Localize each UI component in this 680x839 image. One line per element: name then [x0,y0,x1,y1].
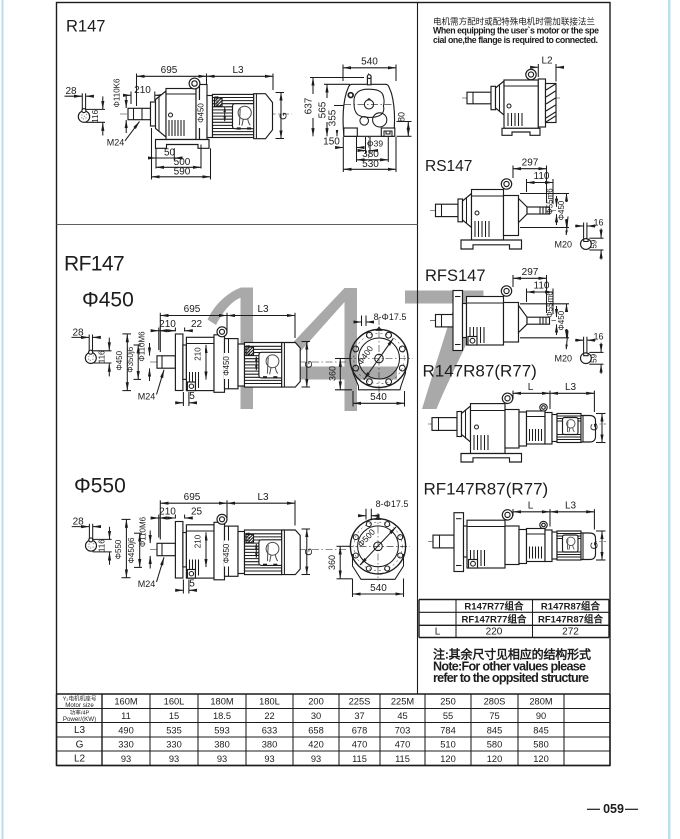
svg-text:Φ450: Φ450 [222,356,231,376]
svg-text:280S: 280S [484,697,506,707]
svg-text:G: G [279,112,290,120]
svg-text:59: 59 [590,239,599,248]
svg-text:220: 220 [486,627,503,638]
svg-text:16: 16 [593,332,603,342]
svg-text:R147R87组合: R147R87组合 [541,601,601,613]
svg-text:Φ450: Φ450 [557,200,566,220]
svg-text:8-Φ17.5: 8-Φ17.5 [374,312,407,322]
svg-text:15: 15 [169,711,179,721]
svg-text:059: 059 [603,802,624,816]
svg-text:Φ39: Φ39 [367,139,384,149]
svg-text:RFS147: RFS147 [425,267,486,285]
svg-text:703: 703 [395,725,411,735]
svg-text:Φ110M6: Φ110M6 [138,331,147,362]
svg-text:Φ110K6: Φ110K6 [112,78,121,107]
svg-text:8-Φ17.5: 8-Φ17.5 [376,499,409,509]
svg-text:L3: L3 [74,725,86,736]
svg-text:cial one,the flange is require: cial one,the flange is required to conne… [433,35,598,45]
svg-text:93: 93 [311,754,321,764]
svg-text:M24: M24 [138,391,156,401]
svg-text:Φ450: Φ450 [197,103,206,123]
svg-text:G: G [76,740,84,751]
svg-text:L2: L2 [74,754,86,765]
svg-text:535: 535 [166,725,182,735]
svg-text:200: 200 [308,697,324,707]
svg-text:510: 510 [440,740,456,750]
svg-text:30: 30 [311,711,321,721]
svg-text:678: 678 [352,725,368,735]
svg-text:L2: L2 [541,56,553,67]
svg-text:Φ350j6: Φ350j6 [126,346,135,373]
svg-text:33.4: 33.4 [246,345,252,356]
svg-text:L3: L3 [257,492,269,503]
svg-text:695: 695 [184,492,201,503]
svg-text:RF147R77组合: RF147R77组合 [462,613,527,625]
svg-text:110: 110 [534,281,550,292]
svg-text:297: 297 [522,267,539,278]
svg-text:L3: L3 [257,304,269,315]
svg-text:R147: R147 [66,18,105,36]
svg-text:250: 250 [440,697,456,707]
svg-text:5: 5 [189,578,195,589]
svg-text:Motor size: Motor size [65,702,94,709]
svg-text:490: 490 [118,725,134,735]
svg-text:695: 695 [161,65,178,76]
svg-text:Φ450: Φ450 [557,310,566,330]
svg-text:G: G [304,360,315,368]
svg-text:633: 633 [262,725,278,735]
svg-text:210: 210 [134,85,151,96]
svg-text:225M: 225M [391,697,414,707]
svg-text:Φ450: Φ450 [115,350,124,370]
svg-text:Φ55m6: Φ55m6 [545,188,554,215]
svg-text:RS147: RS147 [425,158,472,175]
svg-text:RF147R87(R77): RF147R87(R77) [424,479,549,498]
svg-text:28: 28 [73,517,85,528]
svg-text:210: 210 [159,507,176,518]
svg-text:580: 580 [487,740,503,750]
svg-text:180L: 180L [259,697,280,707]
svg-text:L: L [528,501,534,512]
svg-text:540: 540 [370,392,387,403]
svg-text:330: 330 [118,740,134,750]
svg-text:784: 784 [440,725,456,735]
svg-text:22: 22 [264,711,274,721]
svg-text:M20: M20 [555,240,573,250]
svg-text:L3: L3 [565,382,577,393]
svg-text:845: 845 [487,725,503,735]
svg-text:420: 420 [308,740,324,750]
svg-text:355: 355 [328,109,339,126]
svg-text:210: 210 [194,534,203,548]
svg-text:225S: 225S [349,697,371,707]
svg-text:G: G [304,548,315,556]
svg-text:150: 150 [323,136,340,147]
svg-text:Φ110M6: Φ110M6 [138,516,147,547]
svg-text:R147R87(R77): R147R87(R77) [423,361,537,380]
svg-text:Φ450: Φ450 [82,289,134,312]
svg-text:116: 116 [97,539,106,552]
svg-text:115: 115 [352,754,367,764]
svg-text:Φ550: Φ550 [74,475,126,498]
svg-text:540: 540 [370,583,387,594]
svg-text:Φ550: Φ550 [114,539,123,559]
svg-text:RF147R87组合: RF147R87组合 [538,613,603,625]
svg-text:11: 11 [121,711,131,721]
svg-text:360: 360 [327,555,337,570]
svg-text:93: 93 [217,754,227,764]
svg-text:L3: L3 [232,65,244,76]
svg-text:M20: M20 [555,354,573,364]
svg-text:110: 110 [534,171,550,182]
svg-text:33.4: 33.4 [215,96,221,107]
svg-text:33.4: 33.4 [246,532,252,543]
svg-text:116: 116 [91,109,100,122]
svg-text:272: 272 [562,627,579,638]
svg-text:210: 210 [159,319,176,330]
svg-text:M24: M24 [107,138,125,148]
svg-text:refer to the oppsited structur: refer to the oppsited structure [433,671,589,685]
svg-text:L: L [528,382,534,393]
svg-text:5: 5 [189,391,195,402]
svg-text:120: 120 [440,754,456,764]
svg-text:25: 25 [191,507,203,518]
svg-text:160M: 160M [114,697,137,707]
svg-text:L3: L3 [565,501,577,512]
svg-text:28: 28 [65,86,77,97]
svg-text:540: 540 [361,57,378,68]
svg-text:M24: M24 [138,579,156,589]
svg-text:470: 470 [395,740,411,750]
svg-text:22: 22 [191,319,203,330]
svg-text:297: 297 [522,157,539,168]
svg-text:93: 93 [169,754,179,764]
svg-text:Power/(KW): Power/(KW) [63,716,96,723]
svg-text:470: 470 [352,740,368,750]
svg-text:93: 93 [264,754,274,764]
svg-text:280M: 280M [529,697,552,707]
svg-text:120: 120 [487,754,503,764]
svg-text:530: 530 [362,159,379,170]
svg-text:59: 59 [590,353,599,362]
svg-text:18.5: 18.5 [213,711,231,721]
svg-text:55: 55 [443,711,453,721]
svg-text:330: 330 [166,740,182,750]
svg-text:360: 360 [328,366,338,381]
svg-text:580: 580 [533,740,549,750]
svg-text:380: 380 [262,740,278,750]
svg-text:37: 37 [354,711,364,721]
svg-text:Φ450j6: Φ450j6 [127,537,136,564]
svg-text:120: 120 [533,754,549,764]
svg-text:590: 590 [174,167,191,178]
svg-text:637: 637 [304,97,315,114]
svg-text:658: 658 [308,725,324,735]
svg-text:380: 380 [214,740,230,750]
svg-text:L: L [435,627,441,638]
svg-text:G: G [590,541,601,549]
svg-text:845: 845 [533,725,549,735]
svg-text:28: 28 [72,327,84,338]
svg-text:160L: 160L [164,697,185,707]
svg-text:16: 16 [593,217,603,227]
svg-text:G: G [590,423,601,431]
svg-text:695: 695 [184,304,201,315]
svg-text:80: 80 [397,112,407,122]
svg-text:When equipping the user`s moto: When equipping the user`s motor or the s… [433,26,599,36]
svg-text:593: 593 [214,725,230,735]
svg-text:115: 115 [395,754,410,764]
svg-text:180M: 180M [210,697,233,707]
svg-text:75: 75 [489,711,499,721]
svg-text:210: 210 [194,347,203,361]
svg-text:Φ450: Φ450 [222,543,231,563]
svg-text:R147R77组合: R147R77组合 [464,601,524,613]
svg-text:45: 45 [397,711,407,721]
svg-text:93: 93 [121,754,131,764]
svg-text:90: 90 [536,711,546,721]
svg-text:116: 116 [97,350,106,363]
svg-text:RF147: RF147 [64,253,124,276]
